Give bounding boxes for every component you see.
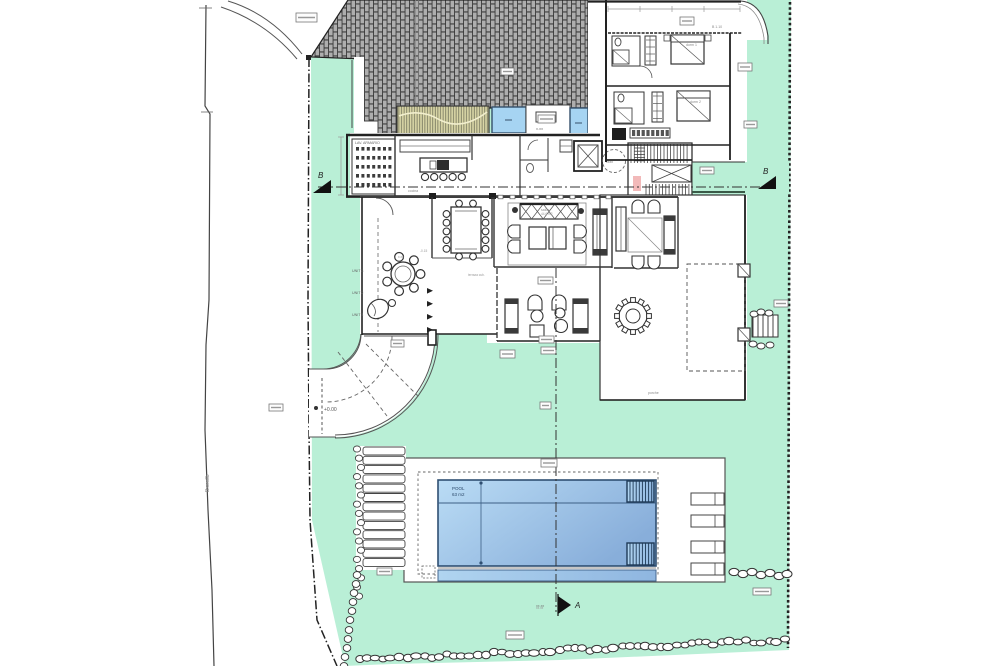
svg-text:B: B [318, 171, 324, 180]
svg-text:44.6 m2: 44.6 m2 [541, 212, 553, 216]
svg-text:B: B [763, 167, 769, 176]
svg-text:A: A [574, 601, 580, 610]
svg-text:-0.15: -0.15 [420, 249, 427, 253]
svg-text:63 m2: 63 m2 [452, 492, 465, 497]
svg-text:x.xx: x.xx [536, 126, 543, 131]
svg-text:LAV. ARMARIO: LAV. ARMARIO [355, 141, 380, 145]
svg-text:dorm 1: dorm 1 [686, 43, 697, 47]
svg-text:porche: porche [648, 391, 659, 395]
svg-text:UNIT 2: UNIT 2 [352, 291, 363, 295]
svg-text:UNIT 1: UNIT 1 [352, 313, 363, 317]
svg-text:dorm 2: dorm 2 [690, 100, 701, 104]
svg-text:cocina: cocina [408, 189, 418, 193]
svg-text:+0.00: +0.00 [324, 407, 337, 413]
svg-text:xx.xx: xx.xx [536, 604, 544, 608]
svg-text:Bxxxdlb: Bxxxdlb [205, 474, 211, 492]
svg-text:x.xx: x.xx [398, 255, 404, 259]
svg-text:B 1.10: B 1.10 [712, 25, 722, 29]
svg-text:UNIT 3: UNIT 3 [352, 269, 363, 273]
svg-text:POOL: POOL [452, 486, 465, 491]
svg-text:terraza cub.: terraza cub. [468, 273, 485, 277]
